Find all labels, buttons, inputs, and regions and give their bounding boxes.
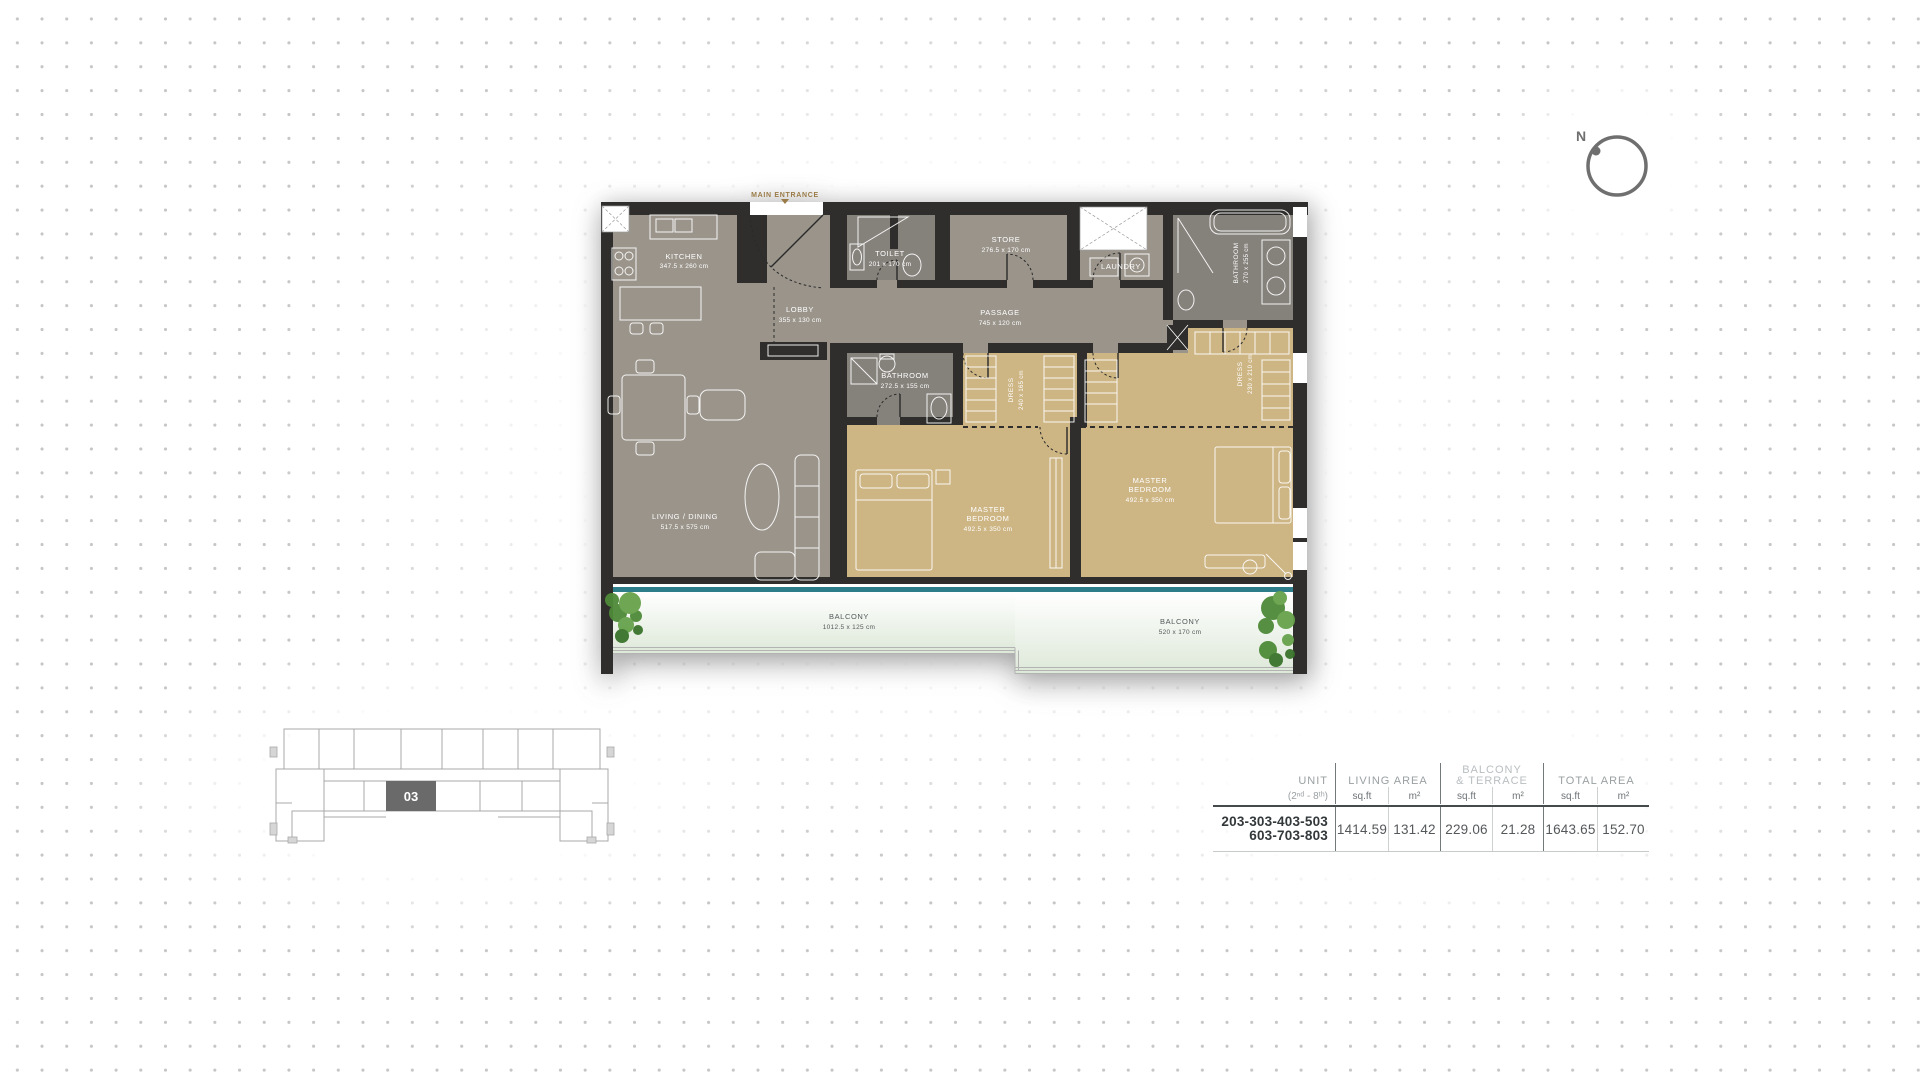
living-m2-value: 131.42 — [1388, 807, 1440, 851]
total-m2-header: m² — [1597, 787, 1649, 804]
living-sqft-value: 1414.59 — [1335, 807, 1388, 851]
passage-dims: 745 x 120 cm — [979, 320, 1022, 327]
passage-label: PASSAGE — [980, 308, 1020, 317]
main-entrance-label: MAIN ENTRANCE — [751, 192, 819, 199]
key-plan-outline — [276, 729, 608, 841]
laundry-label: LAUNDRY — [1101, 262, 1141, 271]
dress-middle-label: DRESS — [1008, 377, 1015, 402]
master-bedroom-2-label-line1: MASTER — [1133, 476, 1168, 485]
north-compass-icon: N — [1572, 120, 1662, 210]
bathroom-top-right-dims: 270 x 255 cm — [1244, 243, 1250, 283]
bathroom-top-right-label: BATHROOM — [1233, 242, 1240, 283]
unit-numbers-line1: 203-303-403-503 — [1221, 815, 1328, 829]
table-header-balcony-terrace: BALCONY & TERRACE — [1440, 763, 1543, 787]
building-key-plan: 03 — [266, 721, 618, 849]
living-m2-header: m² — [1388, 787, 1440, 804]
balcony-sqft-header: sq.ft — [1440, 787, 1492, 804]
store-dims: 276.5 x 170 cm — [982, 247, 1031, 254]
page: { "compass": { "label": "N" }, "plan": {… — [0, 0, 1920, 1078]
master-bedroom-1-dims: 492.5 x 350 cm — [964, 526, 1013, 533]
bathroom-middle-label: BATHROOM — [881, 371, 929, 380]
store-label: STORE — [992, 235, 1021, 244]
table-header-total-area: TOTAL AREA — [1543, 763, 1649, 787]
unit-numbers-line2: 603-703-803 — [1249, 829, 1328, 843]
living-dining-label: LIVING / DINING — [652, 512, 718, 521]
master-bedroom-1-label-line1: MASTER — [971, 505, 1006, 514]
living-dining-dims: 517.5 x 575 cm — [661, 524, 710, 531]
balcony-right-label: BALCONY — [1160, 617, 1200, 626]
unit-title: UNIT — [1298, 775, 1328, 787]
unit-numbers: 203-303-403-503 603-703-803 — [1213, 807, 1335, 851]
toilet-label: TOILET — [875, 249, 905, 258]
kitchen-label: KITCHEN — [665, 252, 702, 261]
dress-middle-dims: 240 x 165 cm — [1019, 370, 1025, 410]
balcony-title-line2: & TERRACE — [1456, 776, 1528, 787]
lobby-dims: 355 x 130 cm — [779, 317, 822, 324]
balcony-right-dims: 520 x 170 cm — [1159, 629, 1202, 636]
table-bottom-rule — [1213, 851, 1649, 852]
total-m2-value: 152.70 — [1597, 807, 1649, 851]
table-header-living-area: LIVING AREA — [1335, 763, 1440, 787]
table-header-unit: UNIT — [1213, 763, 1335, 787]
balcony-m2-header: m² — [1492, 787, 1543, 804]
bathroom-middle-dims: 272.5 x 155 cm — [881, 383, 930, 390]
master-bedroom-2-label-line2: BEDROOM — [1129, 485, 1172, 494]
unit-subtitle: (2ⁿᵈ - 8ᵗʰ) — [1213, 787, 1335, 804]
balcony-main-label: BALCONY — [829, 612, 869, 621]
balcony-m2-value: 21.28 — [1492, 807, 1543, 851]
master-bedroom-2-dims: 492.5 x 350 cm — [1126, 497, 1175, 504]
balcony-sqft-value: 229.06 — [1440, 807, 1492, 851]
dress-right-dims: 230 x 210 cm — [1248, 354, 1254, 394]
compass-north-label: N — [1576, 128, 1586, 144]
area-table: UNIT LIVING AREA BALCONY & TERRACE TOTAL… — [1213, 763, 1649, 852]
lobby-label: LOBBY — [786, 305, 814, 314]
kitchen-dims: 347.5 x 260 cm — [660, 263, 709, 270]
total-sqft-value: 1643.65 — [1543, 807, 1597, 851]
key-plan-unit-number: 03 — [404, 789, 418, 804]
total-sqft-header: sq.ft — [1543, 787, 1597, 804]
master-bedroom-1-label-line2: BEDROOM — [967, 514, 1010, 523]
compass-dot — [1592, 147, 1601, 156]
balcony-main-dims: 1012.5 x 125 cm — [823, 624, 876, 631]
floor-plan: MAIN ENTRANCE KITCHEN 347.5 x 260 cm TOI… — [598, 188, 1313, 688]
dress-right-label: DRESS — [1237, 361, 1244, 386]
compass-circle — [1588, 137, 1646, 195]
living-sqft-header: sq.ft — [1335, 787, 1388, 804]
toilet-dims: 201 x 170 cm — [869, 261, 912, 268]
